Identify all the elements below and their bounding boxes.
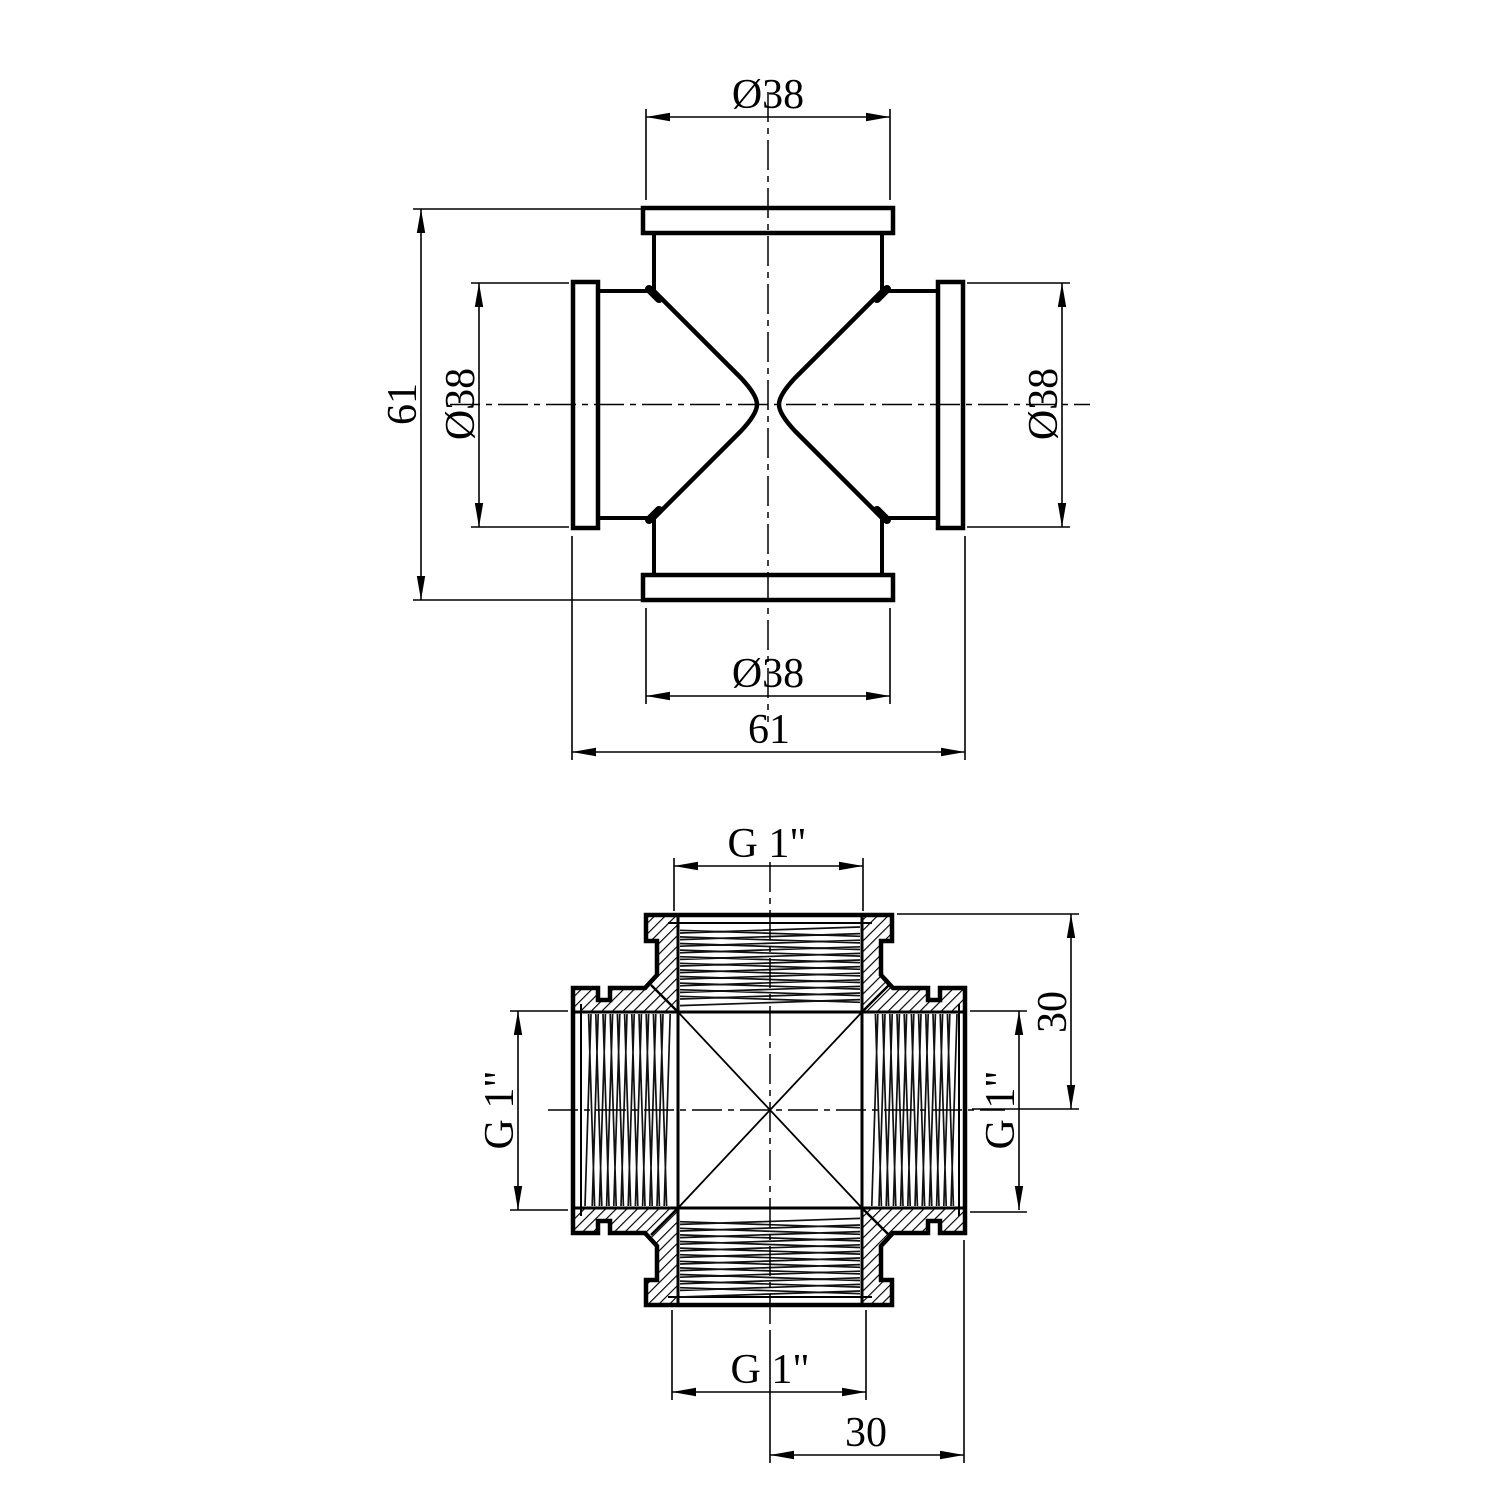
drawing-sheet: Ø38 61 Ø38 Ø38 Ø38 6: [0, 0, 1500, 1500]
dim-label: Ø38: [732, 651, 804, 697]
dim-label: G 1": [477, 1071, 523, 1150]
dim-label: G 1": [978, 1071, 1024, 1150]
dim-label: 61: [748, 707, 790, 753]
dim-label: 61: [380, 383, 426, 425]
dim-label: Ø38: [732, 72, 804, 118]
dim-label: 30: [1030, 991, 1076, 1033]
technical-drawing: Ø38 61 Ø38 Ø38 Ø38 6: [0, 0, 1500, 1500]
dim-label: Ø38: [438, 368, 484, 440]
dim-label: G 1": [731, 1347, 810, 1393]
dim-label: 30: [845, 1410, 887, 1456]
dim-label: Ø38: [1021, 368, 1067, 440]
dim-label: G 1": [728, 821, 807, 867]
